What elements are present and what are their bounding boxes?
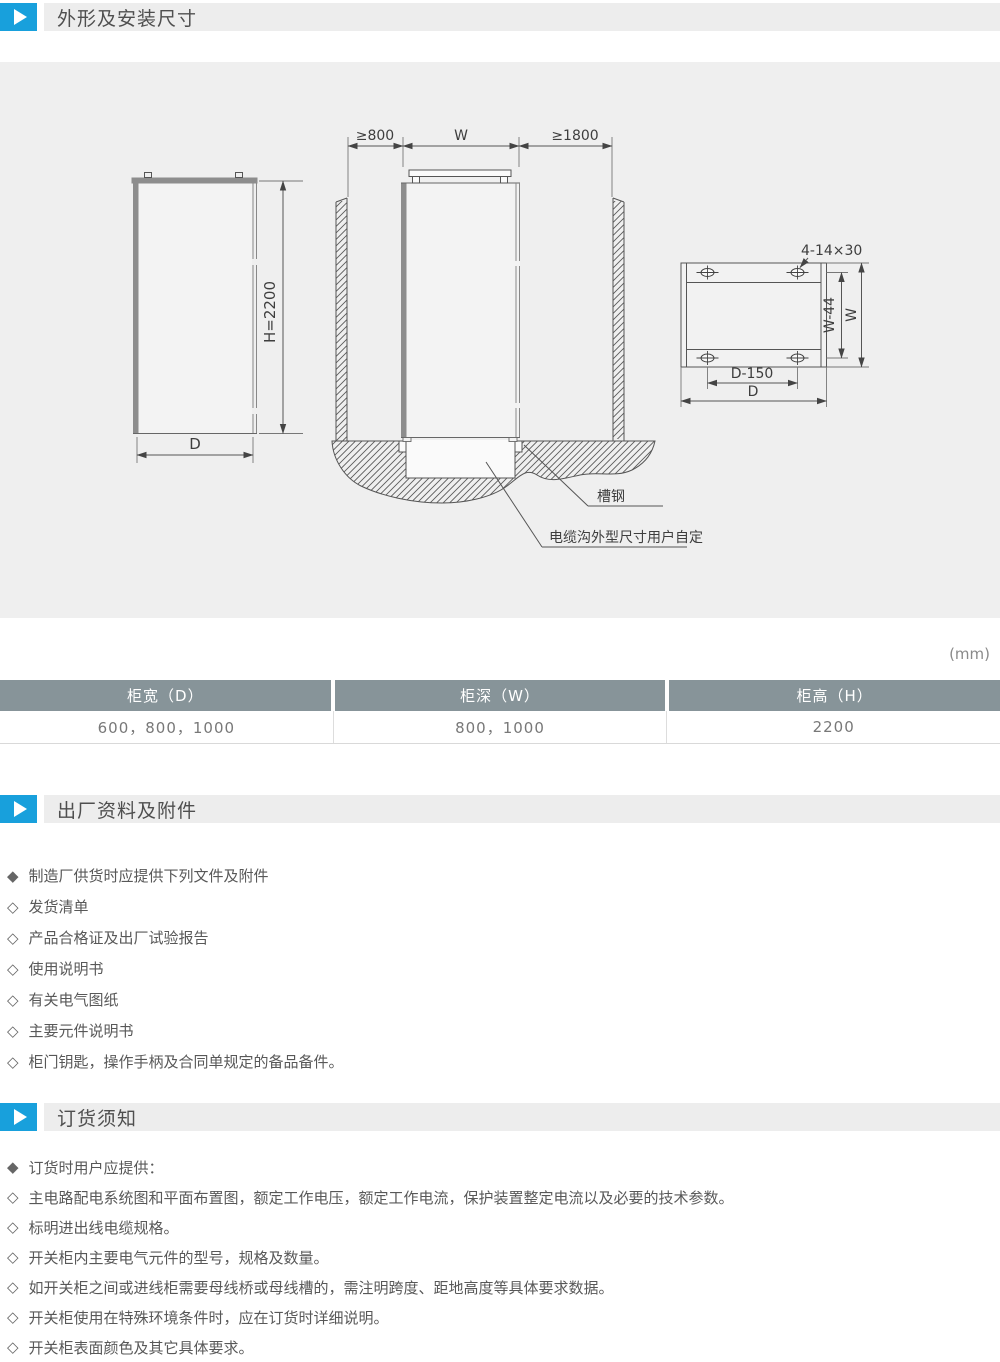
- list-item: ◇有关电气图纸: [7, 984, 1000, 1015]
- cabinet-side-view: H=2200 D: [132, 173, 304, 464]
- diamond-bullet-icon: ◇: [7, 1308, 19, 1326]
- channel-steel-left: [399, 441, 406, 452]
- dim-label-w44: W-44: [822, 297, 838, 333]
- diamond-bullet-icon: ◇: [7, 960, 19, 978]
- diamond-bullet-icon: ◇: [7, 1338, 19, 1356]
- list-item-text: 使用说明书: [29, 958, 104, 979]
- table-header-cell: 柜宽（D）: [0, 680, 331, 711]
- cabinet-front-view: ≥800 W ≥1800 槽钢 电缆沟外型尺寸用户自定: [332, 128, 703, 547]
- list-item-text: 发货清单: [29, 896, 89, 917]
- diamond-bullet-icon: ◇: [7, 991, 19, 1009]
- label-channel-steel: 槽钢: [597, 489, 625, 505]
- diamond-bullet-icon: ◇: [7, 1278, 19, 1296]
- section-title: 外形及安装尺寸: [44, 4, 197, 31]
- diamond-bullet-icon: ◇: [7, 929, 19, 947]
- diamond-bullet-icon: ◇: [7, 1188, 19, 1206]
- diamond-bullet-icon: ◆: [7, 1158, 19, 1176]
- list-item: ◇主要元件说明书: [7, 1015, 1000, 1046]
- table-cell: 600，800，1000: [0, 711, 333, 743]
- dim-label-gap-right: ≥1800: [551, 128, 598, 144]
- mounting-plan-view: 4-14×30 W-44 W D-150: [681, 243, 869, 407]
- table-header-row: 柜宽（D） 柜深（W） 柜高（H）: [0, 680, 1000, 711]
- list-item-text: 开关柜使用在特殊环境条件时，应在订货时详细说明。: [29, 1307, 389, 1328]
- table-cell: 800，1000: [333, 711, 667, 743]
- list-item: ◇开关柜内主要电气元件的型号，规格及数量。: [7, 1242, 1000, 1272]
- section-title-bar: 订货须知: [44, 1103, 1000, 1131]
- dim-label-d150: D-150: [731, 366, 774, 382]
- list-item: ◆制造厂供货时应提供下列文件及附件: [7, 860, 1000, 891]
- list-item-text: 柜门钥匙，操作手柄及合同单规定的备品备件。: [29, 1051, 344, 1072]
- list-item: ◇开关柜使用在特殊环境条件时，应在订货时详细说明。: [7, 1302, 1000, 1332]
- lifting-lug: [236, 173, 243, 178]
- dim-label-plan-d: D: [748, 384, 759, 400]
- section-header-ordering: 订货须知: [0, 1103, 1000, 1131]
- diamond-bullet-icon: ◇: [7, 1248, 19, 1266]
- list-item: ◇产品合格证及出厂试验报告: [7, 922, 1000, 953]
- list-item-text: 开关柜内主要电气元件的型号，规格及数量。: [29, 1247, 329, 1268]
- list-item: ◇如开关柜之间或进线柜需要母线桥或母线槽的，需注明跨度、距地高度等具体要求数据。: [7, 1272, 1000, 1302]
- section-title: 出厂资料及附件: [44, 796, 197, 823]
- diamond-bullet-icon: ◇: [7, 1218, 19, 1236]
- dim-label-gap-left: ≥800: [356, 128, 394, 144]
- dim-label-height: H=2200: [261, 281, 279, 343]
- list-item-text: 产品合格证及出厂试验报告: [29, 927, 209, 948]
- section-title-bar: 出厂资料及附件: [44, 795, 1000, 823]
- cable-trench: [406, 440, 516, 479]
- triangle-icon: [14, 1109, 27, 1125]
- list-item: ◇标明进出线电缆规格。: [7, 1212, 1000, 1242]
- list-item-text: 标明进出线电缆规格。: [29, 1217, 179, 1238]
- list-item: ◆订货时用户应提供：: [7, 1152, 1000, 1182]
- dim-label-depth: D: [189, 435, 201, 453]
- play-arrow-icon: [0, 795, 37, 823]
- factory-docs-list: ◆制造厂供货时应提供下列文件及附件 ◇发货清单 ◇产品合格证及出厂试验报告 ◇使…: [0, 860, 1000, 1077]
- list-item: ◇发货清单: [7, 891, 1000, 922]
- list-item-text: 订货时用户应提供：: [29, 1157, 164, 1178]
- table-row: 600，800，1000 800，1000 2200: [0, 711, 1000, 744]
- dimension-table: 柜宽（D） 柜深（W） 柜高（H） 600，800，1000 800，1000 …: [0, 680, 1000, 744]
- list-item-text: 主电路配电系统图和平面布置图，额定工作电压，额定工作电流，保护装置整定电流以及必…: [29, 1187, 734, 1208]
- section-title: 订货须知: [44, 1104, 137, 1131]
- unit-label: (mm): [0, 645, 1000, 664]
- list-item: ◇柜门钥匙，操作手柄及合同单规定的备品备件。: [7, 1046, 1000, 1077]
- section-title-bar: 外形及安装尺寸: [44, 3, 1000, 31]
- channel-steel-right: [515, 441, 522, 452]
- ordering-notes-list: ◆订货时用户应提供： ◇主电路配电系统图和平面布置图，额定工作电压，额定工作电流…: [0, 1152, 1000, 1362]
- diamond-bullet-icon: ◇: [7, 1053, 19, 1071]
- right-wall-hatch: [613, 201, 624, 439]
- triangle-icon: [14, 801, 27, 817]
- dim-label-plan-w: W: [844, 308, 860, 322]
- play-arrow-icon: [0, 3, 37, 31]
- table-cell: 2200: [666, 711, 1000, 743]
- label-cable-trench-note: 电缆沟外型尺寸用户自定: [549, 529, 703, 546]
- list-item: ◇使用说明书: [7, 953, 1000, 984]
- diagram-svg: H=2200 D: [0, 62, 1000, 618]
- diamond-bullet-icon: ◇: [7, 898, 19, 916]
- section-header-outline: 外形及安装尺寸: [0, 3, 1000, 31]
- label-slot-size: 4-14×30: [801, 243, 862, 259]
- lifting-plate: [409, 170, 511, 177]
- list-item-text: 主要元件说明书: [29, 1020, 134, 1041]
- dim-label-width: W: [454, 128, 468, 144]
- installation-dimension-diagram: H=2200 D: [0, 62, 1000, 618]
- table-header-cell: 柜深（W）: [335, 680, 666, 711]
- triangle-icon: [14, 9, 27, 25]
- catalog-page: 外形及安装尺寸: [0, 3, 1000, 1362]
- table-header-cell: 柜高（H）: [669, 680, 1000, 711]
- list-item-text: 制造厂供货时应提供下列文件及附件: [29, 865, 269, 886]
- diamond-bullet-icon: ◇: [7, 1022, 19, 1040]
- diamond-bullet-icon: ◆: [7, 867, 19, 885]
- list-item-text: 有关电气图纸: [29, 989, 119, 1010]
- list-item-text: 如开关柜之间或进线柜需要母线桥或母线槽的，需注明跨度、距地高度等具体要求数据。: [29, 1277, 614, 1298]
- list-item: ◇主电路配电系统图和平面布置图，额定工作电压，额定工作电流，保护装置整定电流以及…: [7, 1182, 1000, 1212]
- section-header-factory-docs: 出厂资料及附件: [0, 795, 1000, 823]
- lifting-lug: [145, 173, 152, 178]
- list-item-text: 开关柜表面颜色及其它具体要求。: [29, 1337, 254, 1358]
- list-item: ◇开关柜表面颜色及其它具体要求。: [7, 1332, 1000, 1362]
- play-arrow-icon: [0, 1103, 37, 1131]
- left-wall-hatch: [336, 201, 347, 441]
